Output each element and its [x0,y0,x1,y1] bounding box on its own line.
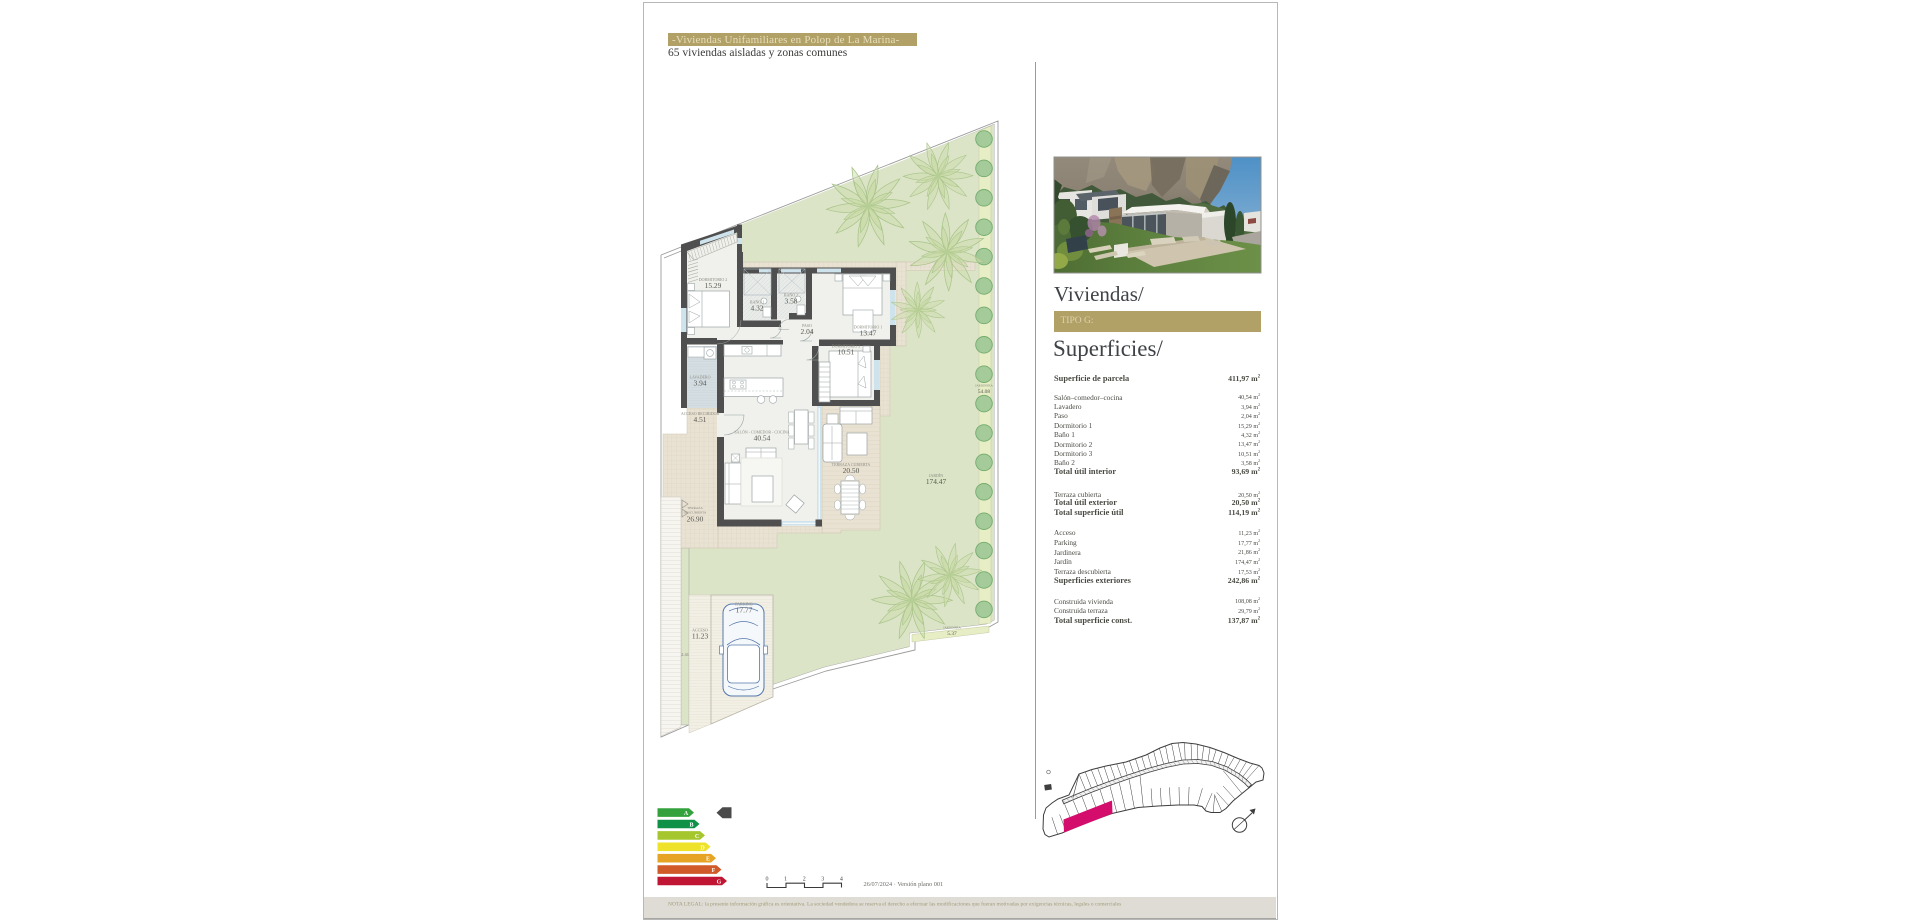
svg-text:D: D [700,845,705,851]
svg-text:3: 3 [821,877,824,883]
svg-text:1: 1 [784,877,787,883]
svg-text:4.51: 4.51 [694,415,707,424]
svg-text:4.32: 4.32 [751,304,764,313]
svg-text:3.58: 3.58 [785,297,798,306]
svg-text:3.94: 3.94 [694,379,707,388]
svg-text:17.77: 17.77 [736,606,753,615]
svg-text:JARDINERA: JARDINERA [975,384,993,388]
svg-text:B: B [689,823,693,829]
svg-text:10.51: 10.51 [838,348,855,357]
svg-text:F: F [712,868,716,874]
svg-text:2.04: 2.04 [801,327,814,336]
svg-text:20.50: 20.50 [843,466,860,475]
svg-text:2.41: 2.41 [681,652,689,657]
svg-text:13.47: 13.47 [860,329,877,338]
svg-text:26/07/2024 · Versión plano 001: 26/07/2024 · Versión plano 001 [864,881,944,888]
svg-text:2: 2 [803,877,806,883]
svg-text:0: 0 [766,877,769,883]
svg-text:54.08: 54.08 [978,389,990,395]
svg-text:C: C [695,834,699,840]
svg-text:TERRAZA: TERRAZA [687,506,703,510]
svg-text:A: A [684,811,689,817]
svg-text:5.37: 5.37 [947,631,957,637]
svg-text:26.90: 26.90 [687,515,704,524]
svg-text:E: E [706,857,710,863]
svg-text:4: 4 [840,877,843,883]
svg-text:15.29: 15.29 [705,281,722,290]
svg-text:40.54: 40.54 [754,434,771,443]
svg-text:11.23: 11.23 [692,632,709,641]
svg-text:G: G [717,880,722,886]
svg-text:174.47: 174.47 [926,477,947,486]
svg-text:JARDINERA: JARDINERA [943,626,961,630]
